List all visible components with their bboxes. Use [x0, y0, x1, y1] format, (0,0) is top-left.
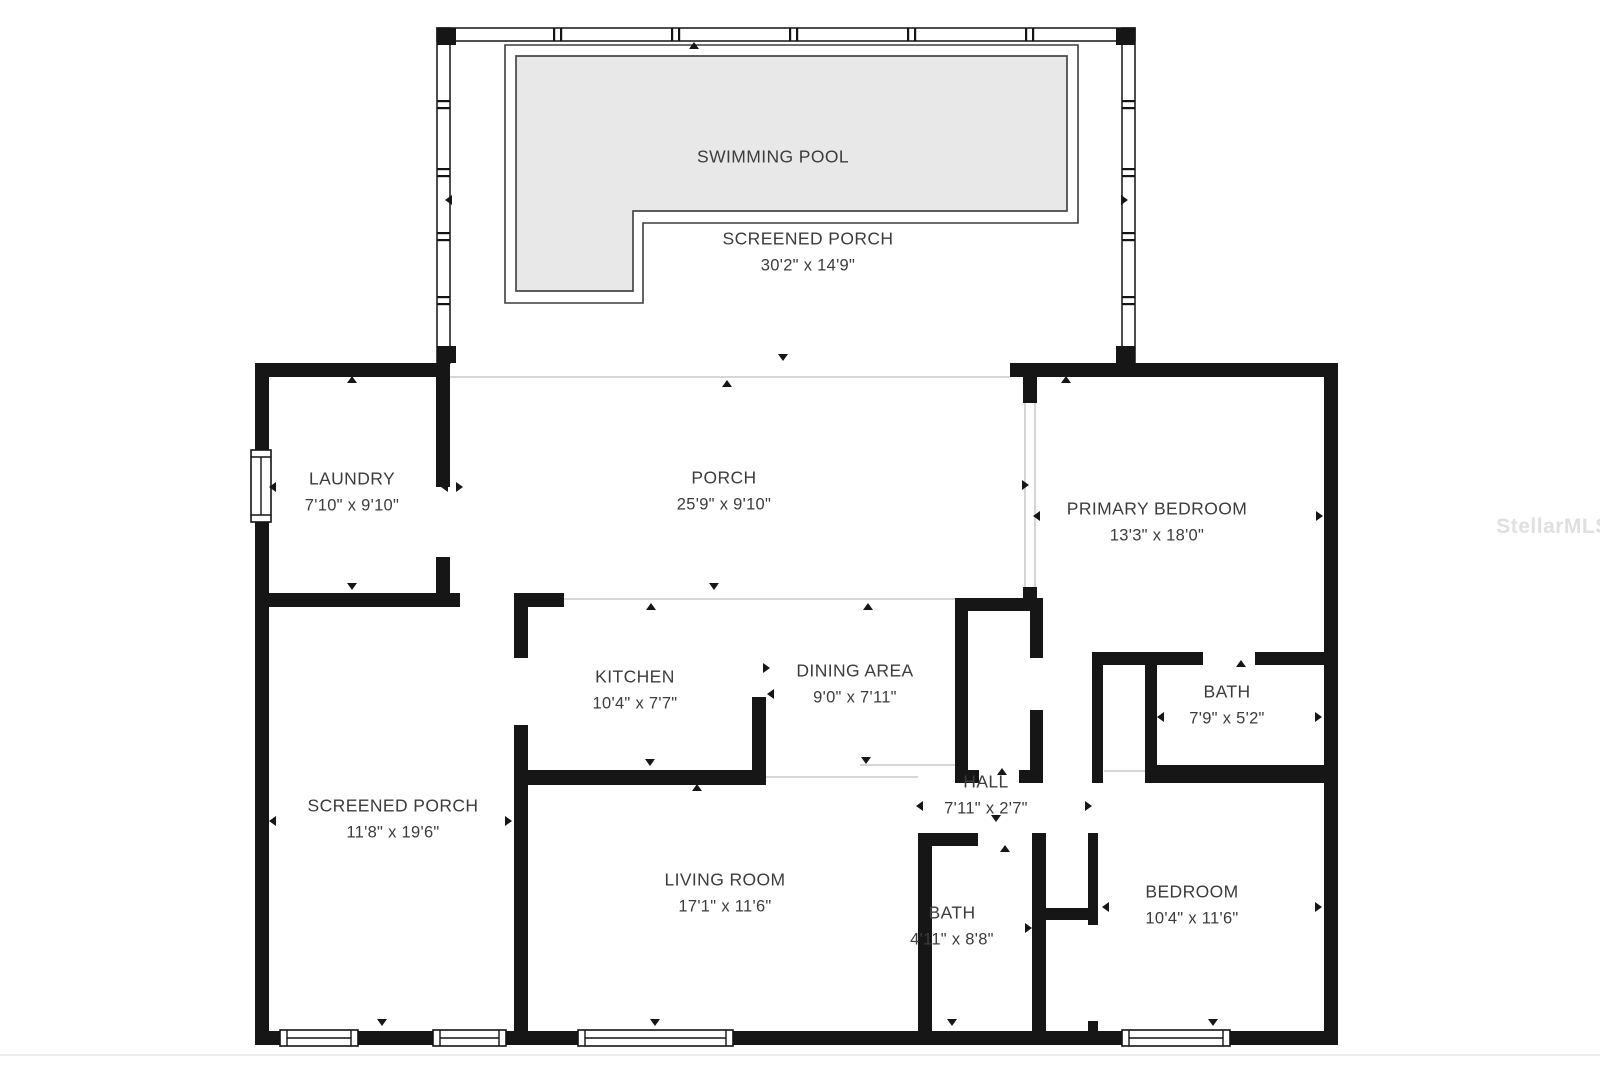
- opening-arrow: [916, 801, 923, 811]
- room-name: SCREENED PORCH: [723, 229, 894, 250]
- room-label-kitchen: KITCHEN 10'4" x 7'7": [593, 667, 678, 714]
- room-dimensions: 13'3" x 18'0": [1067, 527, 1247, 546]
- room-name: BATH: [910, 903, 994, 924]
- room-name: PORCH: [677, 468, 771, 489]
- stellar-mls-watermark: StellarMLS: [1496, 515, 1600, 539]
- opening-arrow: [645, 759, 655, 766]
- room-dimensions: 17'1" x 11'6": [664, 898, 785, 917]
- room-name: LIVING ROOM: [664, 870, 785, 891]
- room-label-primary-bedroom: PRIMARY BEDROOM 13'3" x 18'0": [1067, 499, 1247, 546]
- room-name: HALL: [944, 772, 1028, 793]
- opening-arrow: [1316, 511, 1323, 521]
- opening-arrow: [709, 583, 719, 590]
- room-name: PRIMARY BEDROOM: [1067, 499, 1247, 520]
- room-dimensions: 7'9" x 5'2": [1189, 710, 1264, 729]
- opening-arrow: [778, 354, 788, 361]
- opening-arrow: [505, 816, 512, 826]
- room-label-screened-porch-pool: SCREENED PORCH 30'2" x 14'9": [723, 229, 894, 276]
- opening-arrow: [1000, 845, 1010, 852]
- room-name: SWIMMING POOL: [697, 147, 849, 168]
- opening-arrow: [767, 689, 774, 699]
- open-edges-layer: [0, 376, 1600, 1056]
- room-label-swimming-pool: SWIMMING POOL: [697, 147, 849, 168]
- room-name: DINING AREA: [796, 661, 913, 682]
- room-dimensions: 4'11" x 8'8": [910, 931, 994, 950]
- opening-arrow: [861, 757, 871, 764]
- room-name: KITCHEN: [593, 667, 678, 688]
- room-label-bedroom: BEDROOM 10'4" x 11'6": [1145, 882, 1238, 929]
- room-dimensions: 11'8" x 19'6": [308, 824, 479, 843]
- room-dimensions: 30'2" x 14'9": [723, 257, 894, 276]
- floor-plan: SWIMMING POOL SCREENED PORCH 30'2" x 14'…: [0, 0, 1600, 1066]
- opening-arrow: [1315, 902, 1322, 912]
- room-dimensions: 25'9" x 9'10": [677, 496, 771, 515]
- room-dimensions: 7'11" x 2'7": [944, 800, 1028, 819]
- opening-arrow: [456, 482, 463, 492]
- opening-arrow: [1061, 376, 1071, 383]
- room-label-screened-porch-side: SCREENED PORCH 11'8" x 19'6": [308, 796, 479, 843]
- opening-arrow: [863, 603, 873, 610]
- opening-arrow: [269, 816, 276, 826]
- room-dimensions: 10'4" x 11'6": [1145, 910, 1238, 929]
- room-label-bath-primary: BATH 7'9" x 5'2": [1189, 682, 1264, 729]
- room-name: BEDROOM: [1145, 882, 1238, 903]
- room-name: SCREENED PORCH: [308, 796, 479, 817]
- room-name: LAUNDRY: [305, 469, 399, 490]
- room-label-porch: PORCH 25'9" x 9'10": [677, 468, 771, 515]
- opening-arrow: [377, 1019, 387, 1026]
- opening-arrow: [347, 376, 357, 383]
- room-label-living-room: LIVING ROOM 17'1" x 11'6": [664, 870, 785, 917]
- room-dimensions: 9'0" x 7'11": [796, 689, 913, 708]
- opening-arrow: [1208, 1019, 1218, 1026]
- opening-arrow: [1102, 902, 1109, 912]
- room-dimensions: 10'4" x 7'7": [593, 695, 678, 714]
- opening-arrow: [1315, 712, 1322, 722]
- opening-arrow: [692, 784, 702, 791]
- opening-arrow: [763, 663, 770, 673]
- room-label-laundry: LAUNDRY 7'10" x 9'10": [305, 469, 399, 516]
- opening-arrow: [347, 583, 357, 590]
- room-label-bath-hall: BATH 4'11" x 8'8": [910, 903, 994, 950]
- room-name: BATH: [1189, 682, 1264, 703]
- opening-arrow: [1025, 923, 1032, 933]
- room-label-hall: HALL 7'11" x 2'7": [944, 772, 1028, 819]
- opening-arrow: [650, 1019, 660, 1026]
- room-label-dining-area: DINING AREA 9'0" x 7'11": [796, 661, 913, 708]
- opening-arrow: [1085, 801, 1092, 811]
- room-dimensions: 7'10" x 9'10": [305, 497, 399, 516]
- opening-arrow: [1236, 660, 1246, 667]
- opening-arrow: [1157, 712, 1164, 722]
- opening-arrow: [722, 380, 732, 387]
- opening-arrow: [947, 1019, 957, 1026]
- opening-arrow: [646, 603, 656, 610]
